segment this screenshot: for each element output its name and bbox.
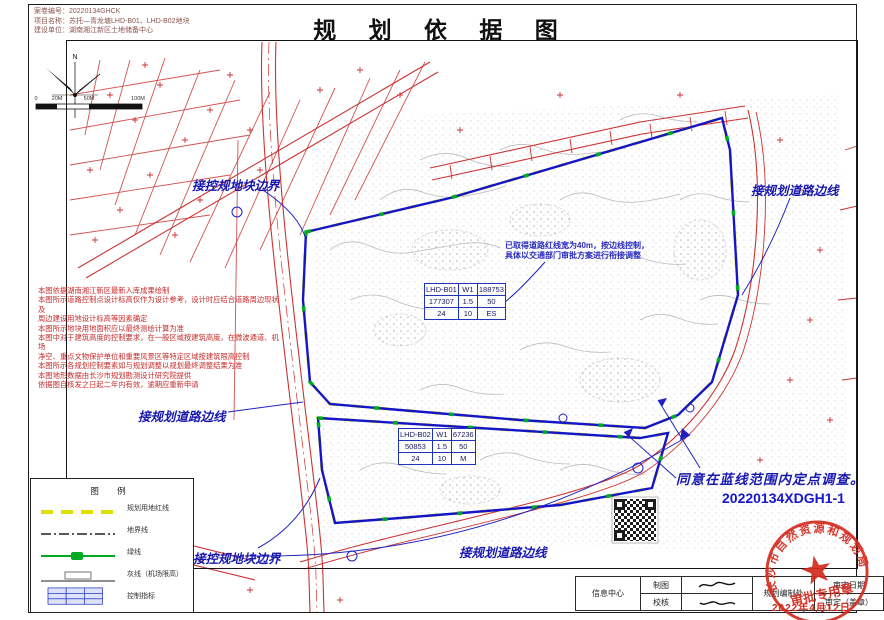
- drafter-signature: [682, 577, 753, 594]
- stamp-star-icon: [799, 553, 833, 586]
- table-cell: W1: [432, 429, 451, 441]
- table-cell: 1.5: [432, 441, 451, 453]
- legend-item: 地界线: [31, 519, 193, 541]
- legend-title: 图 例: [31, 485, 193, 497]
- annotation-plot-boundary-bottom: 接控规地块边界: [193, 548, 281, 567]
- approval-statement: 同意在蓝线范围内定点调查。: [676, 468, 865, 488]
- gray-limit-line-icon: [39, 571, 117, 585]
- drafter-label: 制图: [641, 577, 682, 594]
- note-line: 本图所示地块用地面积应以最终测绘计算为准: [38, 324, 280, 333]
- note-line: 本图所示各规划控制要素如与规划调整以规划最终调整结果为准: [38, 361, 280, 370]
- note-line: 本图所示道路控制点设计标高仅作为设计参考，设计时应结合道路周边现状及: [38, 295, 280, 314]
- header-block: 案卷编号：20220134GHCK 项目名称：苏托—青龙塘LHD-B01、LHD…: [34, 7, 190, 36]
- plan-sheet: N 0 20M 50M 100M 规 划 依 据 图 案卷编号：20220134…: [0, 0, 884, 620]
- indicator-table-icon: [39, 587, 117, 607]
- dash-dot-line-icon: [39, 527, 117, 541]
- table-cell: 1.5: [458, 296, 477, 308]
- map-notes: 本图依据湖南湘江新区最新入库成果绘制 本图所示道路控制点设计标高仅作为设计参考，…: [38, 286, 280, 389]
- plot-b02-indicator-table: LHD-B02 W1 67236 50853 1.5 50 24 10 M: [398, 428, 476, 465]
- table-cell: 188753: [477, 284, 505, 296]
- annotation-road-edge-bottom: 接规划道路边线: [459, 542, 547, 561]
- yellow-dash-line-icon: [39, 505, 117, 519]
- plot-b01-indicator-table: LHD-B01 W1 188753 177307 1.5 50 24 10 ES: [424, 283, 506, 320]
- table-cell: 24: [399, 453, 433, 465]
- table-cell: ES: [477, 308, 505, 320]
- road-note-line: 已取得道路红线宽为40m，按边线控制，: [505, 241, 649, 251]
- legend-item: 绿线: [31, 541, 193, 563]
- note-line: 依据图自核发之日起二年内有效，逾期应重新申请: [38, 380, 280, 389]
- legend: 图 例 规划用地红线 地界线 绿线 灰线（机场限高）: [30, 478, 194, 613]
- checker-signature: [682, 594, 753, 611]
- table-cell: 50853: [399, 441, 433, 453]
- legend-item-label: 灰线（机场限高）: [127, 569, 183, 579]
- legend-item: 控制指标: [31, 585, 193, 607]
- table-cell: W1: [458, 284, 477, 296]
- legend-item-label: 控制指标: [127, 591, 155, 601]
- road-width-note: 已取得道路红线宽为40m，按边线控制， 具体以交通部门审批方案进行衔接调整: [505, 241, 649, 261]
- table-cell: 50: [451, 441, 475, 453]
- table-cell: 67236: [451, 429, 475, 441]
- table-cell: M: [451, 453, 475, 465]
- note-line: 本图地形数据由长沙市规划勘测设计研究院提供: [38, 371, 280, 380]
- table-cell: 50: [477, 296, 505, 308]
- sheet-number: 案卷编号：20220134GHCK: [34, 7, 190, 17]
- road-note-line: 具体以交通部门审批方案进行衔接调整: [505, 251, 649, 261]
- project-name: 项目名称：苏托—青龙塘LHD-B01、LHD-B02地块: [34, 17, 190, 27]
- note-line: 本图依据湖南湘江新区最新入库成果绘制: [38, 286, 280, 295]
- table-cell: LHD-B01: [425, 284, 459, 296]
- note-line: 周边建设用地设计标高等因素确定: [38, 314, 280, 323]
- info-center-cell: 信息中心: [576, 577, 641, 611]
- approval-case-number: 20220134XDGH1-1: [722, 490, 845, 506]
- stamp-date: 2022年4月12日: [772, 599, 851, 614]
- signature-scribble: [697, 597, 737, 607]
- annotation-road-edge-right: 接规划道路边线: [751, 180, 839, 199]
- legend-item-label: 地界线: [127, 525, 148, 535]
- table-cell: 10: [458, 308, 477, 320]
- signature-scribble: [697, 580, 737, 590]
- owner-name: 建设单位：湖南湘江新区土地储备中心: [34, 26, 190, 36]
- legend-item-label: 绿线: [127, 547, 141, 557]
- legend-item: 灰线（机场限高）: [31, 563, 193, 585]
- table-cell: LHD-B02: [399, 429, 433, 441]
- table-cell: 10: [432, 453, 451, 465]
- green-line-icon: [39, 549, 117, 563]
- checker-label: 校核: [641, 594, 682, 611]
- table-cell: 24: [425, 308, 459, 320]
- annotation-road-edge-left: 接规划道路边线: [138, 406, 226, 425]
- note-line: 本图中对于建筑高度的控制要求，在一般区域按建筑高度，在微波通道、机场: [38, 333, 280, 352]
- legend-item-label: 规划用地红线: [127, 503, 169, 513]
- note-line: 净空、重点文物保护单位和重要风景区等特定区域按建筑限高控制: [38, 352, 280, 361]
- table-cell: 177307: [425, 296, 459, 308]
- annotation-plot-boundary-top: 接控规地块边界: [192, 175, 280, 194]
- legend-item: 规划用地红线: [31, 497, 193, 519]
